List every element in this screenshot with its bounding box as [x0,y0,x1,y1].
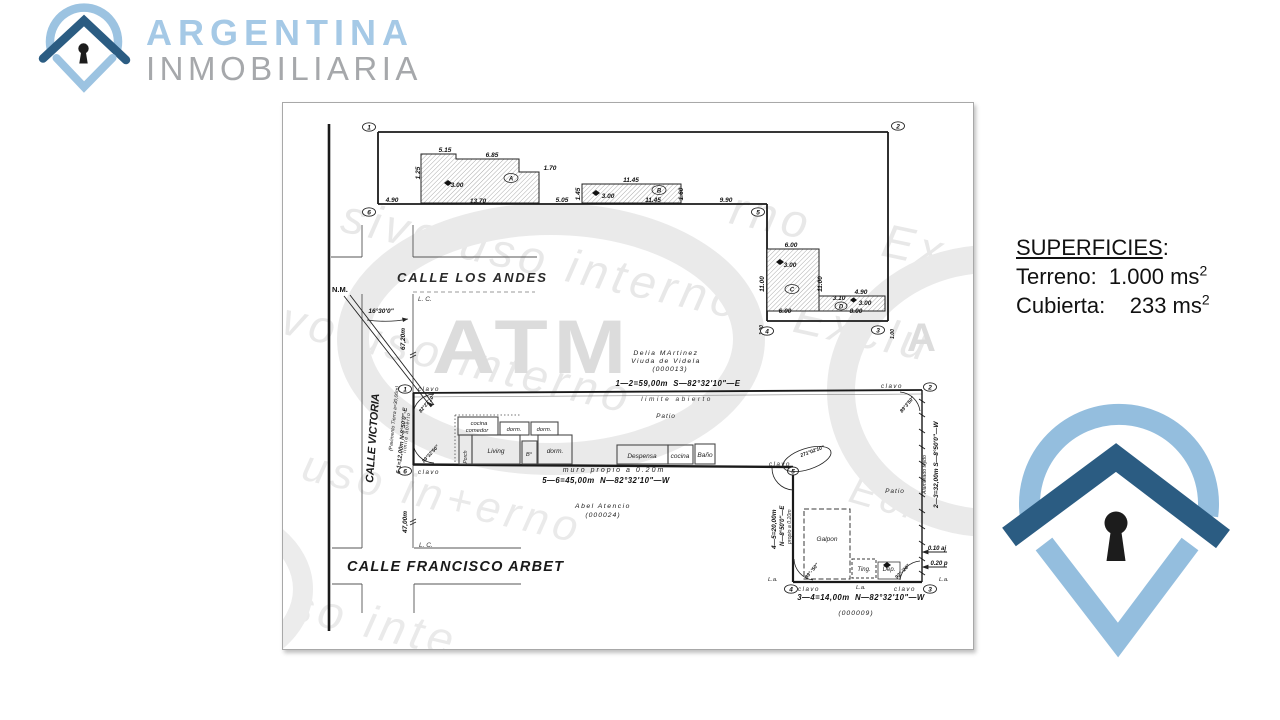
svg-text:2—3=32,00m S—8°50'0"—W: 2—3=32,00m S—8°50'0"—W [932,421,940,509]
svg-text:Patio: Patio [885,488,905,495]
svg-text:13.70: 13.70 [470,198,487,205]
svg-text:3.00: 3.00 [451,182,464,189]
svg-text:4—5=20,00m: 4—5=20,00m [771,509,778,550]
svg-text:comedor: comedor [466,428,490,434]
svg-text:Ting.: Ting. [857,567,870,573]
svg-text:67,20m: 67,20m [400,328,407,350]
svg-text:Porch: Porch [463,450,469,463]
svg-text:Delia MArtinez: Delia MArtinez [633,350,698,357]
svg-text:N.M.: N.M. [332,285,348,294]
svg-text:3—4=14,00m N—82°32'10"—W: 3—4=14,00m N—82°32'10"—W [797,593,925,602]
svg-text:2: 2 [895,124,900,131]
svg-text:11.45: 11.45 [645,197,661,204]
svg-text:4.90: 4.90 [854,289,868,296]
svg-text:0.20 p: 0.20 p [930,561,947,567]
svg-text:C: C [790,288,795,294]
svg-text:A: A [907,316,941,360]
svg-text:muro propio a 0.20m: muro propio a 0.20m [563,467,666,474]
svg-text:5.05: 5.05 [556,197,569,204]
svg-text:(000013): (000013) [652,366,687,373]
svg-text:Patio: Patio [656,413,676,420]
svg-text:1: 1 [403,387,407,394]
svg-text:clavo: clavo [418,469,440,476]
svg-text:1.00: 1.00 [890,329,896,339]
svg-text:A: A [508,177,513,183]
svg-text:6: 6 [367,210,371,217]
svg-text:Living: Living [488,448,505,455]
svg-text:8.00: 8.00 [850,308,863,315]
svg-text:L.a.: L.a. [939,577,949,583]
svg-text:1.25: 1.25 [415,166,422,179]
svg-text:dorm.: dorm. [547,448,564,455]
svg-text:B°: B° [526,452,533,458]
svg-text:propio a 0.20m: propio a 0.20m [787,509,793,545]
svg-text:1.60: 1.60 [678,187,685,200]
svg-text:dorm.: dorm. [537,427,552,433]
svg-text:dorm.: dorm. [507,427,522,433]
svg-text:3: 3 [876,328,880,335]
svg-text:clavo: clavo [418,386,440,393]
svg-text:Abel Atencio: Abel Atencio [574,503,631,510]
svg-text:5—6=45,00m N—82°32'10"—W: 5—6=45,00m N—82°32'10"—W [542,476,670,485]
svg-text:1.70: 1.70 [544,165,557,172]
svg-text:Galpon: Galpon [817,536,838,543]
svg-text:6.85: 6.85 [486,152,499,159]
svg-text:4.90: 4.90 [385,197,399,204]
svg-text:4: 4 [764,329,769,336]
svg-text:6: 6 [403,469,407,476]
svg-text:3.00: 3.00 [602,193,615,200]
svg-text:47,00m: 47,00m [402,511,409,534]
svg-text:3.00: 3.00 [859,300,872,307]
svg-text:Dep.: Dep. [883,567,896,573]
svg-text:3: 3 [928,587,932,594]
svg-text:11.00: 11.00 [817,276,824,292]
svg-text:2: 2 [927,385,932,392]
svg-text:L.a.: L.a. [768,577,778,583]
svg-text:D: D [839,305,844,311]
svg-text:5.15: 5.15 [439,147,452,154]
svg-text:L.a.: L.a. [856,585,866,591]
svg-text:(000009): (000009) [838,610,873,617]
svg-text:CALLE FRANCISCO ARBET: CALLE FRANCISCO ARBET [347,559,564,575]
svg-text:clavo: clavo [894,586,916,593]
svg-text:L. C.: L. C. [418,296,432,303]
svg-text:(000024): (000024) [585,512,620,519]
svg-text:4: 4 [788,587,793,594]
svg-text:6.00: 6.00 [779,308,792,315]
svg-text:N—8°50'0"—E: N—8°50'0"—E [780,505,786,546]
svg-text:clavo: clavo [798,586,820,593]
svg-text:9.90: 9.90 [720,197,733,204]
svg-text:limite abierto: limite abierto [641,396,713,403]
svg-text:1.45: 1.45 [575,187,582,200]
svg-text:cocina: cocina [471,421,489,427]
svg-text:Baño: Baño [697,452,713,459]
svg-text:6.00: 6.00 [785,242,798,249]
svg-text:1: 1 [367,125,371,132]
svg-text:3.00: 3.00 [784,262,797,269]
svg-text:Despensa: Despensa [627,453,657,460]
svg-text:B: B [657,189,662,195]
svg-text:ATM: ATM [432,305,632,390]
svg-text:Viuda de Videla: Viuda de Videla [631,358,701,365]
svg-text:0.10 aj: 0.10 aj [928,546,947,552]
svg-text:L. C.: L. C. [419,542,433,549]
svg-text:cocina: cocina [671,453,690,460]
svg-text:3.10: 3.10 [833,295,846,302]
svg-text:Alambrado tejido: Alambrado tejido [922,455,928,495]
svg-text:CALLE LOS ANDES: CALLE LOS ANDES [397,270,548,285]
svg-text:5: 5 [756,210,760,217]
svg-text:1—2=59,00m S—82°32'10"—E: 1—2=59,00m S—82°32'10"—E [616,379,741,388]
svg-text:clavo: clavo [769,461,791,468]
svg-text:11.00: 11.00 [759,276,766,292]
svg-text:clavo: clavo [881,383,903,390]
svg-text:11.45: 11.45 [623,177,639,184]
svg-text:16°30'0": 16°30'0" [368,307,394,315]
